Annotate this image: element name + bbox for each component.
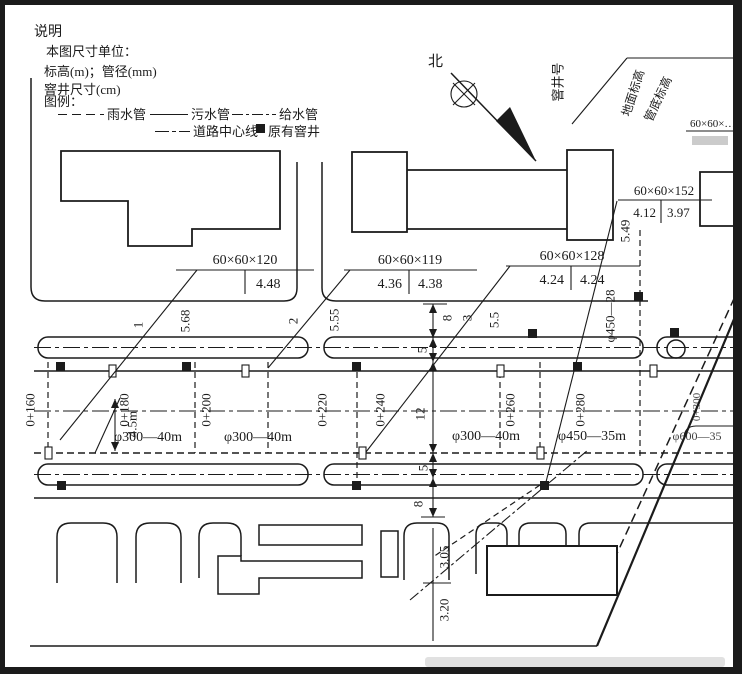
sewage-pipe-label: 污水管 [191, 107, 230, 122]
well2-invert: 4.38 [418, 277, 443, 292]
well-elev-2: 5.55 [327, 309, 342, 332]
well5-size-partial: 60×60×… [690, 118, 735, 130]
notes-legend-line: 图例： [44, 94, 83, 109]
station-0280: 0+280 [573, 393, 588, 426]
station-0240: 0+240 [373, 393, 388, 426]
well3-invert: 4.24 [580, 273, 605, 288]
drainage-plan-drawing: 60×60×120 4.48 60×60×119 4.36 4.38 60×60… [0, 0, 742, 674]
station-0200: 0+200 [199, 393, 214, 426]
notes-title: 说明 [34, 24, 62, 40]
well1-invert: 4.48 [256, 277, 281, 292]
north-label: 北 [428, 53, 443, 70]
dim-12-center: 12 [413, 408, 428, 421]
dim-8-top: 8 [440, 315, 455, 322]
well-no-1: 1 [131, 322, 146, 329]
station-0160: 0+160 [23, 393, 38, 426]
pipe-seg6-label: φ600—35 [673, 429, 722, 443]
station-0300: 0+300 [691, 392, 703, 421]
water-pipe-label: 给水管 [279, 107, 318, 122]
well4-elevation: 5.49 [618, 220, 633, 243]
well-no-2: 2 [286, 318, 301, 325]
well4-size: 60×60×152 [634, 183, 694, 198]
well-elev-3: 5.5 [487, 312, 502, 328]
pipe-seg2-label: φ300—40m [224, 430, 292, 445]
well-no-3: 3 [460, 315, 475, 322]
illegible-smudge [692, 136, 728, 145]
well1-size: 60×60×120 [213, 253, 278, 268]
notes-unit-line: 本图尺寸单位： [46, 44, 137, 59]
well-elev-1: 5.68 [178, 310, 193, 333]
road-width-label: 4.5m [125, 411, 140, 437]
well2-ground: 4.36 [378, 277, 403, 292]
well-no-header: 窨井号 [551, 62, 566, 101]
existing-well-label: 原有窨井 [268, 124, 320, 139]
watermark-smudge [425, 657, 725, 667]
dim-5-upper: 5 [415, 347, 430, 354]
well4-ground: 4.12 [633, 205, 656, 220]
dim-5-lower: 5 [416, 465, 431, 472]
station-0260: 0+260 [503, 393, 518, 426]
invert-elev-value: 3.20 [437, 599, 452, 622]
well2-size: 60×60×119 [378, 253, 442, 268]
well3-ground: 4.24 [540, 273, 565, 288]
centerline-label: 道路中心线 [193, 124, 258, 139]
plan-canvas: 60×60×120 4.48 60×60×119 4.36 4.38 60×60… [0, 0, 742, 674]
station-0220: 0+220 [315, 393, 330, 426]
pipe-seg3-label: φ300—40m [452, 429, 520, 444]
rain-pipe-label: 雨水管 [107, 107, 146, 122]
pipe-seg4-label: φ450—35m [558, 429, 626, 444]
existing-well-symbol [256, 124, 265, 133]
pipe-seg5-label: φ450—28 [603, 289, 618, 342]
well3-size: 60×60×128 [540, 249, 605, 264]
notes-elev-line: 标高(m)；管径(mm) [44, 64, 157, 80]
dim-8-bottom: 8 [411, 501, 426, 508]
well4-invert: 3.97 [667, 205, 690, 220]
